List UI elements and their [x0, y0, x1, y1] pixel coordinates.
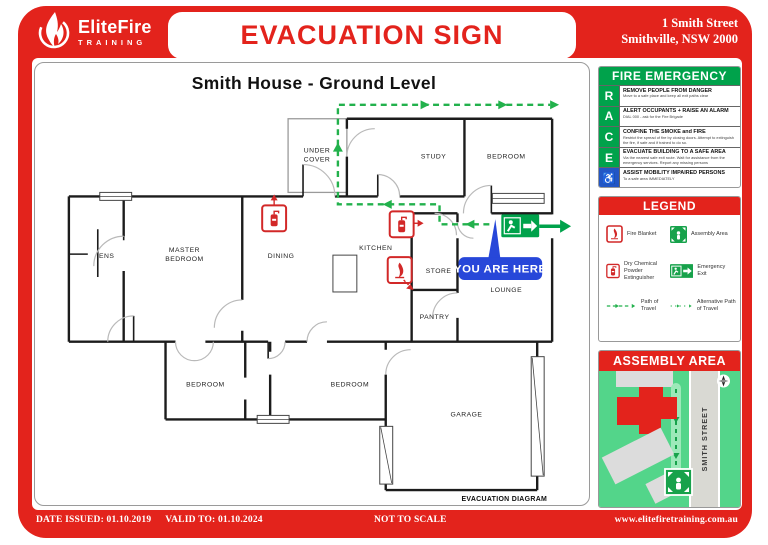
address-line-1: 1 Smith Street: [582, 15, 738, 31]
room-label: DINING: [268, 253, 295, 260]
assembly-point-icon: [665, 469, 692, 495]
room-label: BEDROOM: [487, 154, 525, 161]
race-letter: E: [599, 148, 620, 168]
sign-title-block: EVACUATION SIGN: [168, 12, 576, 59]
room-label: PANTRY: [420, 314, 450, 321]
legend-label: Alternative Path of Travel: [697, 299, 736, 313]
race-row-assist: ♿ ASSIST MOBILITY IMPAIRED PERSONS To a …: [599, 167, 740, 188]
legend-item: Fire Blanket: [606, 225, 670, 243]
emergency-exit-icon: [670, 264, 693, 278]
race-detail: Move to a safe place and keep all exit p…: [623, 94, 712, 99]
room-label: BEDROOM: [186, 382, 224, 389]
legend-item: Path of Travel: [606, 299, 670, 313]
legend-label: Dry Chemical Powder Extinguisher: [624, 261, 670, 282]
exit-path-arrow: [539, 220, 571, 233]
legend-body: Fire Blanket Assembly Area: [599, 215, 740, 312]
sign-title: EVACUATION SIGN: [240, 20, 503, 51]
room-label: COVER: [304, 157, 331, 164]
walls: [69, 119, 552, 490]
floor-plan-panel: Smith House - Ground Level: [34, 62, 590, 506]
assembly-area-icon: [670, 226, 687, 243]
date-issued: DATE ISSUED: 01.10.2019: [36, 515, 151, 525]
race-detail: Restrict the spread of fire by closing d…: [623, 136, 738, 146]
room-label: GARAGE: [450, 411, 482, 418]
room-label: BEDROOM: [331, 382, 369, 389]
fire-emergency-title: FIRE EMERGENCY: [599, 67, 740, 85]
room-label: ENS: [99, 253, 114, 260]
race-letter: A: [599, 107, 620, 127]
legend-title: LEGEND: [599, 197, 740, 215]
race-letter: C: [599, 127, 620, 147]
legend-item: Dry Chemical Powder Extinguisher: [606, 261, 670, 282]
plan-title: Smith House - Ground Level: [192, 73, 437, 93]
extinguisher-icon: [390, 211, 414, 237]
legend-label: Fire Blanket: [627, 231, 656, 238]
fire-emergency-panel: FIRE EMERGENCY R REMOVE PEOPLE FROM DANG…: [598, 66, 741, 188]
assembly-area-map: SMITH STREET: [599, 371, 740, 507]
race-row-confine: C CONFINE THE SMOKE and FIRE Restrict th…: [599, 126, 740, 147]
legend-panel: LEGEND Fire Blanket: [598, 196, 741, 342]
room-label: LOUNGE: [491, 287, 523, 294]
race-row-alert: A ALERT OCCUPANTS + RAISE AN ALARM DIAL …: [599, 106, 740, 127]
race-detail: DIAL 000 - ask for the Fire Brigade: [623, 115, 729, 120]
legend-item: Alternative Path of Travel: [670, 299, 736, 313]
room-label: STORE: [426, 268, 452, 275]
brand-name: EliteFire: [78, 18, 152, 36]
valid-to: VALID TO: 01.10.2024: [165, 515, 262, 525]
legend-label: Emergency Exit: [697, 264, 735, 278]
room-label: BEDROOM: [165, 256, 203, 263]
assembly-area-title: ASSEMBLY AREA: [599, 351, 740, 371]
legend-item: Emergency Exit: [670, 264, 735, 278]
race-detail: Via the nearest safe exit route. Wait fo…: [623, 156, 738, 166]
room-label: MASTER: [169, 247, 200, 254]
room-label: UNDER: [304, 148, 331, 155]
fixture-walls: [69, 165, 491, 359]
floor-plan: Smith House - Ground Level: [35, 63, 589, 505]
room-label: KITCHEN: [359, 245, 392, 252]
elitefire-logo: EliteFire TRAINING: [38, 11, 152, 53]
windows: [100, 192, 544, 484]
kitchen-island: [333, 255, 357, 292]
scale-note: NOT TO SCALE: [374, 515, 447, 525]
race-row-remove: R REMOVE PEOPLE FROM DANGER Move to a sa…: [599, 85, 740, 106]
address-line-2: Smithville, NSW 2000: [582, 31, 738, 47]
plan-footnote: EVACUATION DIAGRAM: [461, 496, 547, 503]
legend-label: Assembly Area: [691, 231, 728, 238]
path-of-travel-icon: [606, 302, 637, 310]
evacuation-sign-page: EliteFire TRAINING EVACUATION SIGN 1 Smi…: [0, 0, 768, 545]
street-label: SMITH STREET: [700, 407, 709, 472]
legend-item: Assembly Area: [670, 226, 735, 243]
legend-label: Path of Travel: [641, 299, 670, 313]
neighbour-building: [616, 371, 673, 387]
race-letter: R: [599, 86, 620, 106]
wheelchair-icon: ♿: [599, 168, 620, 188]
extinguisher-icon: [606, 262, 620, 280]
room-label: STUDY: [421, 154, 446, 161]
brand-subtitle: TRAINING: [78, 39, 152, 47]
site-address: 1 Smith Street Smithville, NSW 2000: [582, 15, 738, 47]
race-row-evacuate: E EVACUATE BUILDING TO A SAFE AREA Via t…: [599, 147, 740, 168]
fire-blanket-icon: [606, 225, 623, 243]
door-arcs: [94, 129, 492, 375]
fire-blanket-icon: [388, 257, 412, 283]
you-are-here-label: YOU ARE HERE: [454, 264, 547, 276]
issue-dates: DATE ISSUED: 01.10.2019VALID TO: 01.10.2…: [36, 515, 277, 525]
emergency-exit-sign-icon: [501, 214, 539, 237]
assembly-area-panel: ASSEMBLY AREA SMITH STREET: [598, 350, 741, 508]
flame-icon: [38, 11, 72, 53]
room-labels: UNDER COVER STUDY BEDROOM ENS MASTER BED…: [99, 148, 525, 419]
race-detail: To a safe area IMMEDIATELY: [623, 177, 725, 182]
logo-text: EliteFire TRAINING: [78, 18, 152, 47]
alt-path-of-travel-icon: [670, 302, 693, 310]
website-url: www.elitefiretraining.com.au: [615, 515, 738, 525]
extinguisher-icon: [262, 205, 286, 231]
